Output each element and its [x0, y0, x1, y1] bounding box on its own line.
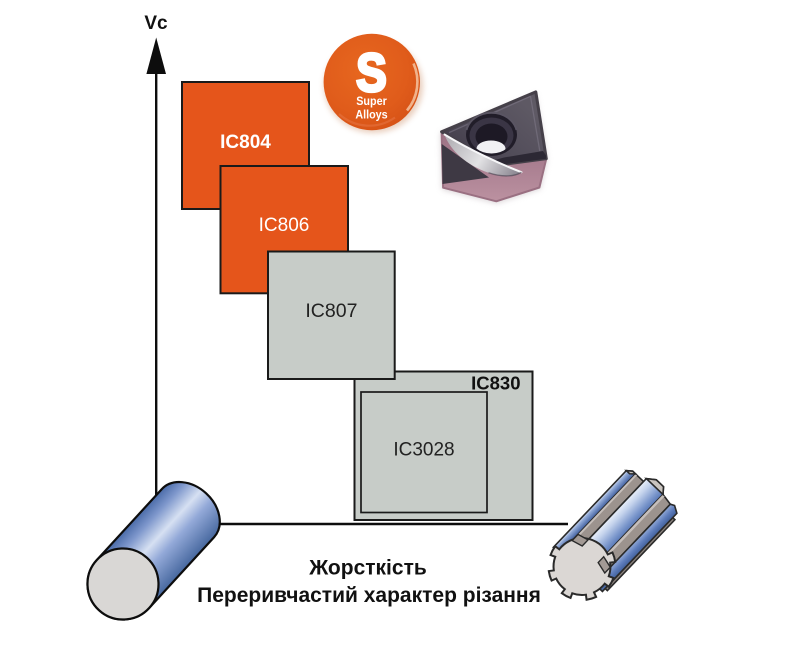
svg-text:IC3028: IC3028 — [393, 440, 454, 461]
svg-text:IC830: IC830 — [471, 373, 520, 394]
svg-text:IC807: IC807 — [305, 300, 357, 322]
svg-text:IC806: IC806 — [259, 215, 310, 236]
svg-text:IC804: IC804 — [220, 132, 271, 153]
svg-text:Переривчастий характер різання: Переривчастий характер різання — [197, 584, 541, 607]
svg-text:Vc: Vc — [144, 13, 168, 34]
svg-text:Жорсткість: Жорсткість — [308, 557, 427, 580]
svg-text:Alloys: Alloys — [355, 108, 387, 122]
svg-text:Super: Super — [356, 94, 387, 108]
